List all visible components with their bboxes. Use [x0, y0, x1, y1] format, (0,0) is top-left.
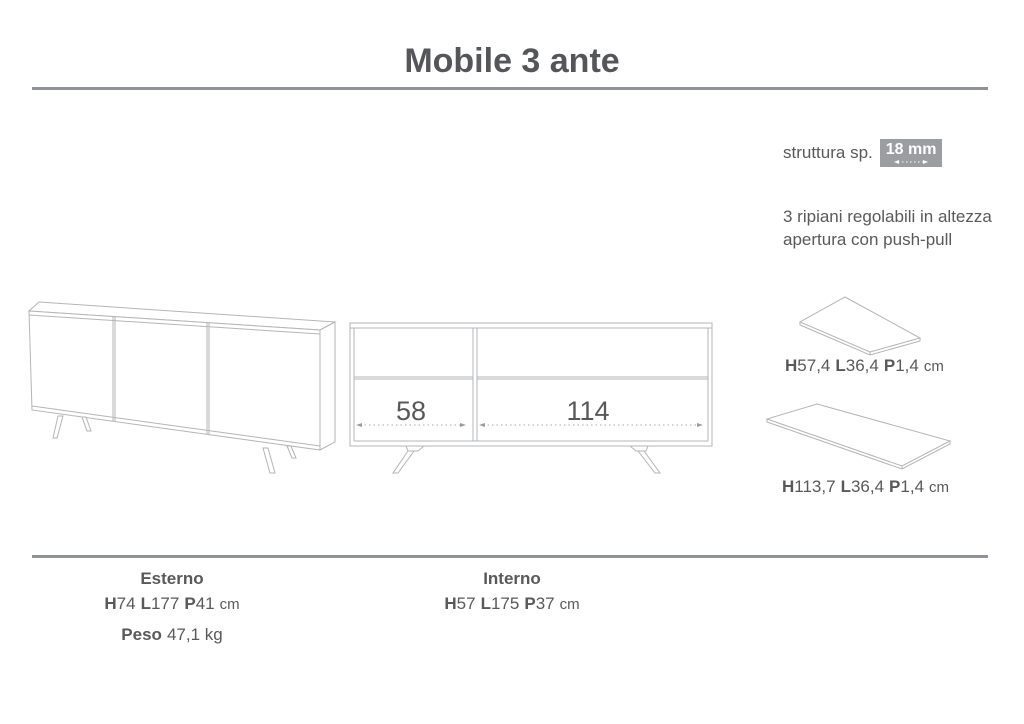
internal-specs: Interno H57L175P37cm: [422, 569, 602, 614]
cabinet-front-face: [29, 311, 320, 450]
shelf-small-dimensions: H57,4L36,4P1,4cm: [785, 356, 940, 376]
shelf-large-top-face: [767, 404, 950, 466]
shelf-small-top-face: [800, 297, 920, 352]
internal-specs-title: Interno: [422, 569, 602, 589]
spec-sheet-page: Mobile 3 ante struttura sp. 18 mm 3 ripi…: [0, 0, 1024, 724]
shelf-large-drawing: [760, 400, 960, 475]
dim-h-label: H: [444, 594, 456, 613]
dim-h-value: 57: [457, 594, 476, 613]
dim-unit: cm: [560, 596, 580, 613]
shelf-large-dimensions: H113,7L36,4P1,4cm: [782, 477, 942, 497]
internal-dimensions: H57L175P37cm: [422, 594, 602, 614]
dim-p-label: P: [889, 477, 900, 496]
top-divider-rule: [32, 87, 988, 90]
cabinet-front-view-drawing: 58 114: [348, 320, 718, 478]
dim-unit: cm: [220, 596, 240, 613]
front-leg-bracket: [406, 446, 424, 451]
external-specs-title: Esterno: [82, 569, 262, 589]
dim-h-value: 57,4: [797, 356, 830, 375]
cabinet-leg: [263, 448, 275, 473]
dim-p-value: 41: [196, 594, 215, 613]
dim-h-label: H: [785, 356, 797, 375]
external-dimensions: H74L177P41cm: [82, 594, 262, 614]
front-leg: [393, 451, 414, 473]
cabinet-leg: [82, 417, 91, 431]
right-compartment-width: 114: [566, 396, 609, 426]
cabinet-side-face: [320, 322, 335, 450]
structure-thickness-note: struttura sp. 18 mm: [783, 139, 942, 167]
structure-thickness-label: struttura sp.: [783, 143, 873, 163]
cabinet-leg: [287, 446, 296, 458]
weight-spec: Peso47,1 kg: [82, 625, 262, 645]
dim-h-value: 74: [117, 594, 136, 613]
dimension-arrow: [697, 423, 703, 427]
structure-thickness-value-box: 18 mm: [880, 139, 943, 167]
dim-p-label: P: [184, 594, 195, 613]
dim-l-label: L: [841, 477, 851, 496]
weight-label: Peso: [121, 625, 162, 644]
features-line-2: apertura con push-pull: [783, 228, 992, 251]
dim-h-label: H: [104, 594, 116, 613]
dim-l-value: 177: [151, 594, 179, 613]
cabinet-perspective-drawing: [25, 295, 345, 480]
features-line-1: 3 ripiani regolabili in altezza: [783, 205, 992, 228]
dim-l-label: L: [835, 356, 845, 375]
external-specs: Esterno H74L177P41cm Peso47,1 kg: [82, 569, 262, 645]
dim-p-value: 37: [536, 594, 555, 613]
shelf-small-drawing: [795, 292, 930, 364]
dim-l-label: L: [141, 594, 151, 613]
dim-h-value: 113,7: [794, 477, 835, 496]
dim-p-label: P: [884, 356, 895, 375]
front-view-outline: [350, 323, 712, 446]
dim-unit: cm: [924, 358, 944, 375]
dim-unit: cm: [929, 479, 949, 496]
dim-p-value: 1,4: [895, 356, 919, 375]
dim-h-label: H: [782, 477, 794, 496]
page-title: Mobile 3 ante: [0, 42, 1024, 81]
dim-l-value: 36,4: [851, 477, 884, 496]
front-leg-bracket: [630, 446, 648, 451]
bottom-divider-rule: [32, 555, 988, 558]
front-leg: [638, 451, 660, 473]
dimension-arrow: [356, 423, 362, 427]
dimension-arrow: [460, 423, 466, 427]
cabinet-leg: [53, 416, 63, 438]
width-arrow-icon: [893, 159, 929, 165]
dim-l-label: L: [481, 594, 491, 613]
features-note: 3 ripiani regolabili in altezza apertura…: [783, 205, 992, 251]
dim-l-value: 175: [491, 594, 519, 613]
dimension-arrow: [479, 423, 485, 427]
dim-l-value: 36,4: [846, 356, 879, 375]
dim-p-value: 1,4: [900, 477, 924, 496]
left-compartment-width: 58: [396, 396, 426, 426]
dim-p-label: P: [524, 594, 535, 613]
weight-value: 47,1 kg: [167, 625, 223, 644]
structure-thickness-value: 18 mm: [886, 141, 937, 159]
